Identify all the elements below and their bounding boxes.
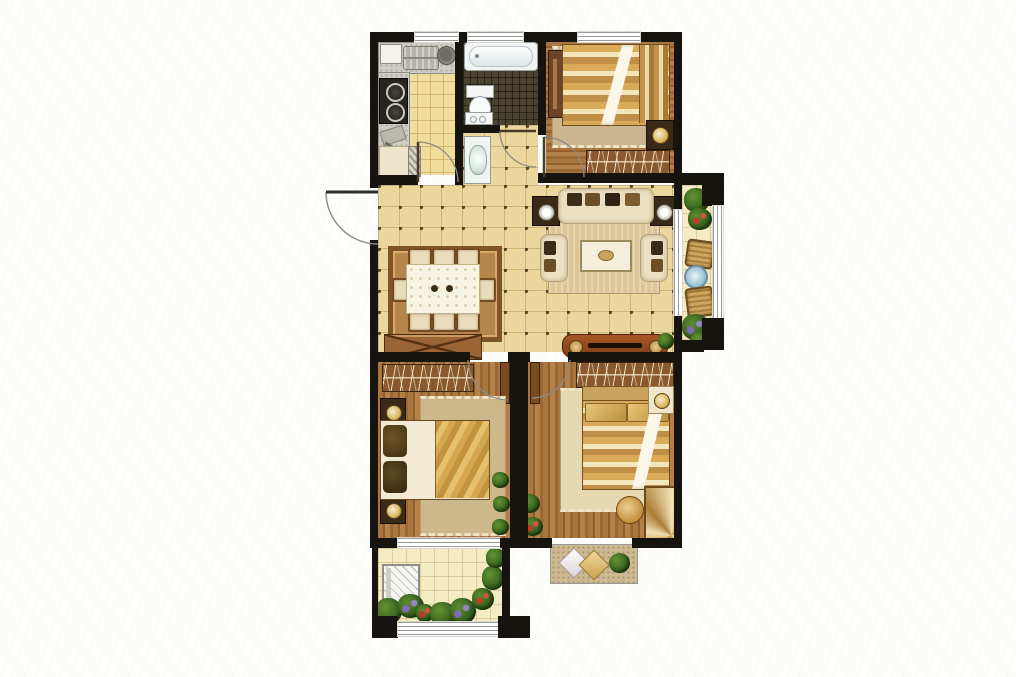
bedroom2-balcony-window xyxy=(398,538,500,548)
bedroom1-bed xyxy=(562,44,670,126)
armchair-left xyxy=(540,234,568,282)
bedroom2-bed xyxy=(380,420,490,500)
bay-window-seat xyxy=(550,544,638,584)
bedroom2-plant xyxy=(492,472,509,488)
balcony-post-top xyxy=(702,173,724,206)
bedroom3-ottoman xyxy=(616,496,644,524)
dining-table xyxy=(406,264,480,314)
bedroom1-white-throw xyxy=(593,45,643,125)
bathroom-window xyxy=(468,32,523,42)
sofa-pillow xyxy=(605,193,620,206)
bedroom1-side-cabinet xyxy=(548,50,563,118)
dining-chair xyxy=(456,312,480,332)
wall-living-bottom-left xyxy=(378,352,470,362)
bedroom3-fan-chaise xyxy=(644,486,678,546)
dining-chair xyxy=(432,312,456,332)
washer-panel xyxy=(386,568,391,600)
bedroom2-lamp xyxy=(386,405,402,421)
wall-left-lower xyxy=(370,240,378,548)
bedroom2-wardrobe xyxy=(382,364,474,392)
bay-plant xyxy=(609,553,630,573)
washbasin-bowl xyxy=(469,145,487,175)
balcony2-plant xyxy=(472,588,494,610)
bedroom3-nightstand xyxy=(648,386,674,414)
table-plate xyxy=(446,285,453,292)
washbasin-vanity xyxy=(464,136,491,184)
kitchen-window xyxy=(415,32,458,42)
television xyxy=(588,343,642,348)
bed-pillow xyxy=(383,425,407,457)
bedroom3-wardrobe xyxy=(576,362,674,388)
bedroom1-wardrobe xyxy=(586,150,670,174)
armchair-right xyxy=(640,234,668,282)
wall-bath-bottom xyxy=(455,125,500,133)
bedroom1-nightstand xyxy=(646,120,674,150)
bedroom1-pillows xyxy=(639,45,668,123)
wall-bath-right xyxy=(538,42,546,135)
bathtub xyxy=(464,42,538,71)
sofa-main xyxy=(558,188,654,224)
coffee-table-decor xyxy=(598,250,614,261)
bay-cushion-gold xyxy=(578,549,609,580)
armchair-pillow xyxy=(544,259,556,272)
kitchen-small-appliance xyxy=(380,44,402,64)
entry-door-arc xyxy=(326,192,378,244)
balcony-right-window xyxy=(713,206,723,318)
wall-kitchen-bottom xyxy=(370,175,418,185)
bed-pillow xyxy=(585,403,627,422)
bathtub-drain xyxy=(475,54,479,58)
kitchen-sink xyxy=(403,46,439,70)
balcony2-post-right xyxy=(498,616,530,638)
dining-chair xyxy=(478,278,496,302)
wall-kitchen-right xyxy=(455,42,463,185)
sofa-pillow xyxy=(585,193,600,206)
armchair-pillow xyxy=(544,241,556,255)
coffee-table xyxy=(580,240,632,272)
balcony-sliding-door xyxy=(674,210,682,315)
floor-plan-canvas xyxy=(0,0,1016,677)
table-plate xyxy=(431,285,438,292)
stove-burner xyxy=(386,83,405,102)
wall-bottom-seg xyxy=(500,538,552,548)
cabinet-knob xyxy=(479,116,486,123)
bedroom2-plant xyxy=(493,496,510,512)
armchair-pillow xyxy=(651,241,663,255)
balcony2-bottom-window xyxy=(398,622,498,636)
bedroom2-plant xyxy=(492,519,509,535)
cabinet-knob xyxy=(470,116,477,123)
balcony2-post-left xyxy=(372,616,398,638)
bedroom2-lamp xyxy=(386,503,402,519)
stove-burner xyxy=(386,103,405,122)
drying-rack xyxy=(408,146,421,177)
balcony2-right-wall xyxy=(502,548,510,618)
balcony-post-bottom xyxy=(702,318,724,350)
bedroom1-window xyxy=(578,32,640,42)
table-lamp xyxy=(538,204,555,221)
bed-pillow xyxy=(383,461,407,493)
wall-left-upper xyxy=(370,32,378,188)
kitchen-pot xyxy=(437,46,456,65)
bedroom2-nightstand xyxy=(380,496,406,524)
armchair-pillow xyxy=(651,259,663,272)
bedroom3-lamp xyxy=(654,393,670,409)
end-table-left xyxy=(532,196,560,226)
bed-gold-blanket xyxy=(435,421,489,498)
balcony-plant xyxy=(688,208,712,230)
wall-living-bottom-right xyxy=(568,352,682,362)
bedroom3-door-leaf xyxy=(530,362,540,404)
wall-bedroom1-bottom xyxy=(538,173,674,183)
dining-chair xyxy=(408,312,432,332)
sofa-pillow xyxy=(625,193,640,206)
living-plant xyxy=(658,333,674,349)
table-lamp xyxy=(656,204,673,221)
cabinet-panel xyxy=(553,59,557,109)
bathroom-cabinet xyxy=(465,112,493,125)
balcony2-plant xyxy=(482,566,504,590)
refrigerator xyxy=(379,146,409,177)
balcony-bottom-wall xyxy=(678,340,704,352)
wall-right-lower xyxy=(674,362,682,548)
wall-bottom-seg xyxy=(370,538,398,548)
sofa-pillow xyxy=(567,193,582,206)
gas-stove xyxy=(379,78,408,124)
wall-bedrooms-divider xyxy=(510,352,528,548)
bedroom1-lamp xyxy=(652,127,669,144)
